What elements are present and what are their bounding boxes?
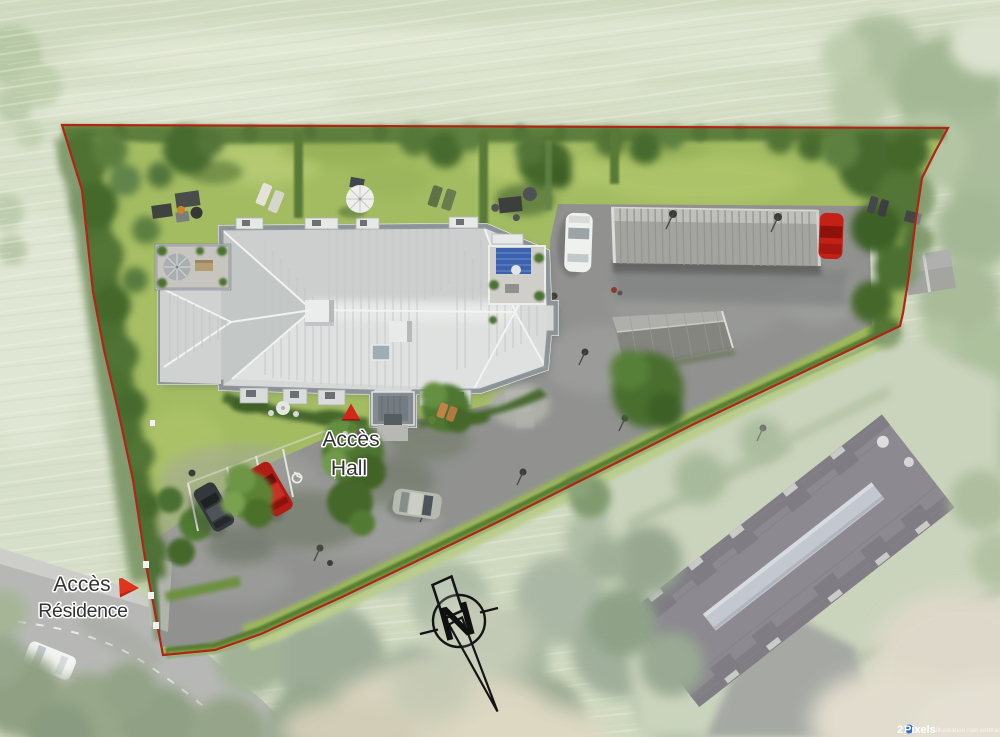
svg-text:illustration non contractuelle: illustration non contractuelle (936, 727, 1000, 734)
svg-text:Hall: Hall (331, 457, 367, 480)
svg-text:Pixels: Pixels (904, 724, 936, 736)
svg-text:2: 2 (897, 724, 903, 736)
svg-text:Accès: Accès (53, 573, 110, 596)
svg-text:Accès: Accès (322, 428, 379, 451)
svg-text:Résidence: Résidence (38, 600, 127, 622)
